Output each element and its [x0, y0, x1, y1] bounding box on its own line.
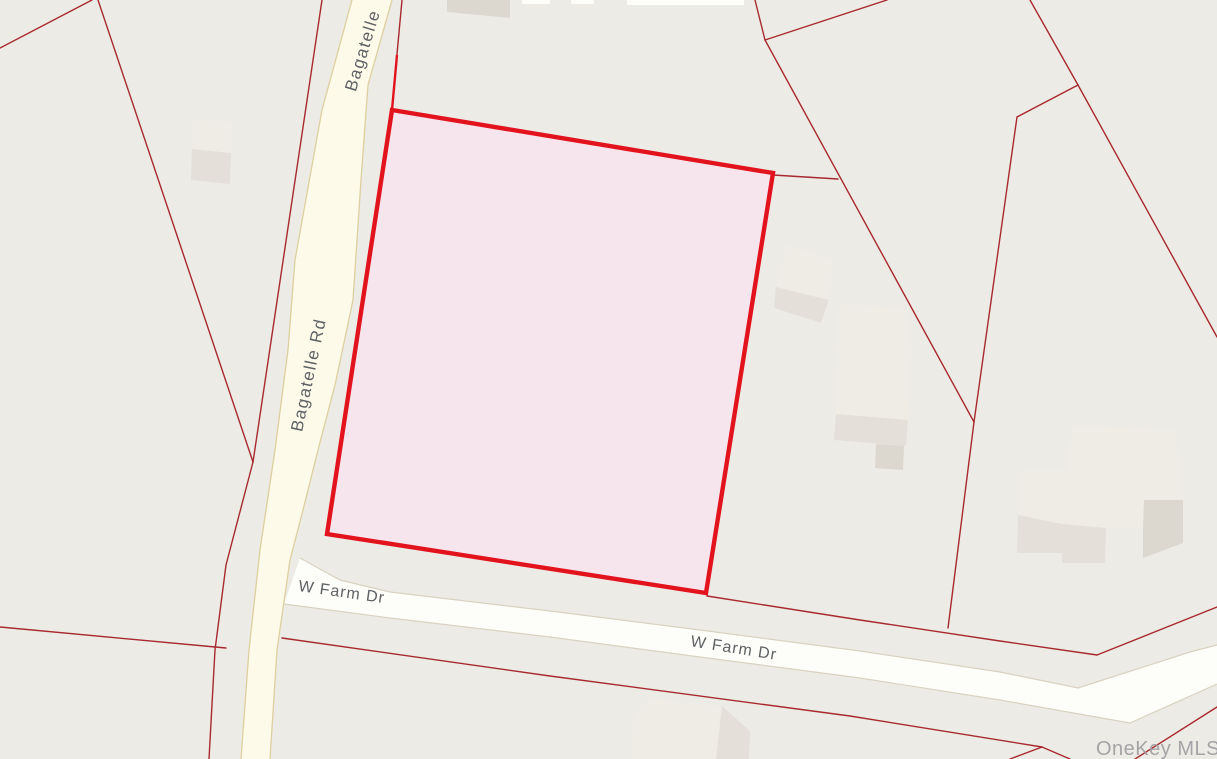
map-canvas[interactable]: Bagatelle Bagatelle Rd W Farm Dr W Farm … — [0, 0, 1217, 759]
watermark-onekey-mls: OneKey MLS — [1096, 738, 1217, 759]
building-small-northwest — [191, 118, 232, 184]
parcel-map-svg: Bagatelle Bagatelle Rd W Farm Dr W Farm … — [0, 0, 1217, 759]
